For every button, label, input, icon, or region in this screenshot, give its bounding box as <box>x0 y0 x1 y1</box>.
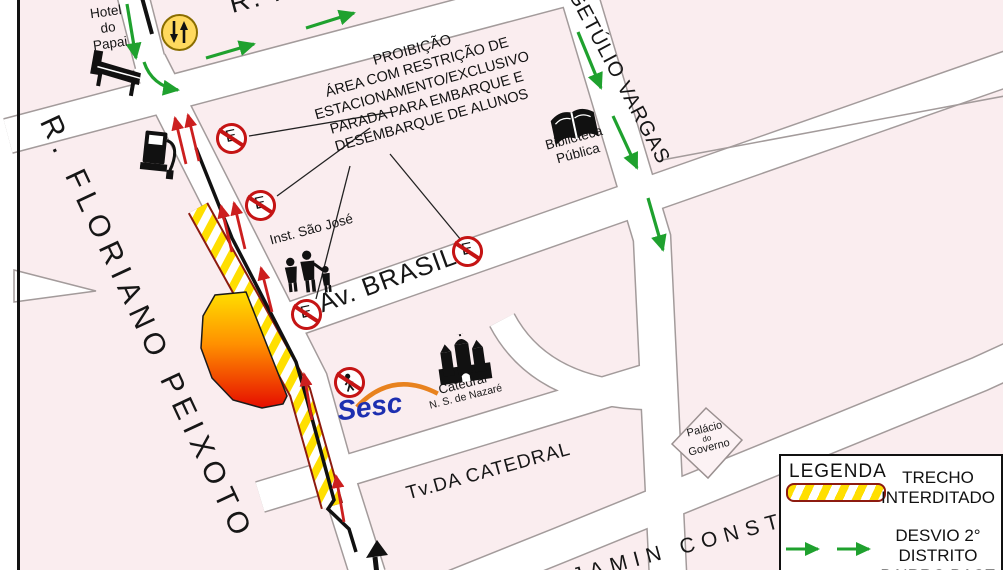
hotel-bed-icon <box>84 48 148 106</box>
road-closure-map: R. RU GETÚLIO VARGAS R. FLORIANO PEIXOTO… <box>0 0 1003 570</box>
legend-closed-sample <box>786 483 886 502</box>
map-frame-line <box>17 0 20 570</box>
legend-box: LEGENDA TRECHO INTERDITADO DESVIO 2° DIS… <box>779 454 1003 570</box>
legend-detour-label: DESVIO 2° DISTRITO BAIRRO BASE <box>879 526 997 570</box>
fuel-pump-icon <box>138 124 182 191</box>
legend-closed-label: TRECHO INTERDITADO <box>879 468 997 508</box>
legend-title: LEGENDA <box>789 461 887 483</box>
legend-detour-arrows <box>785 540 885 558</box>
two-way-traffic-icon <box>161 14 198 51</box>
